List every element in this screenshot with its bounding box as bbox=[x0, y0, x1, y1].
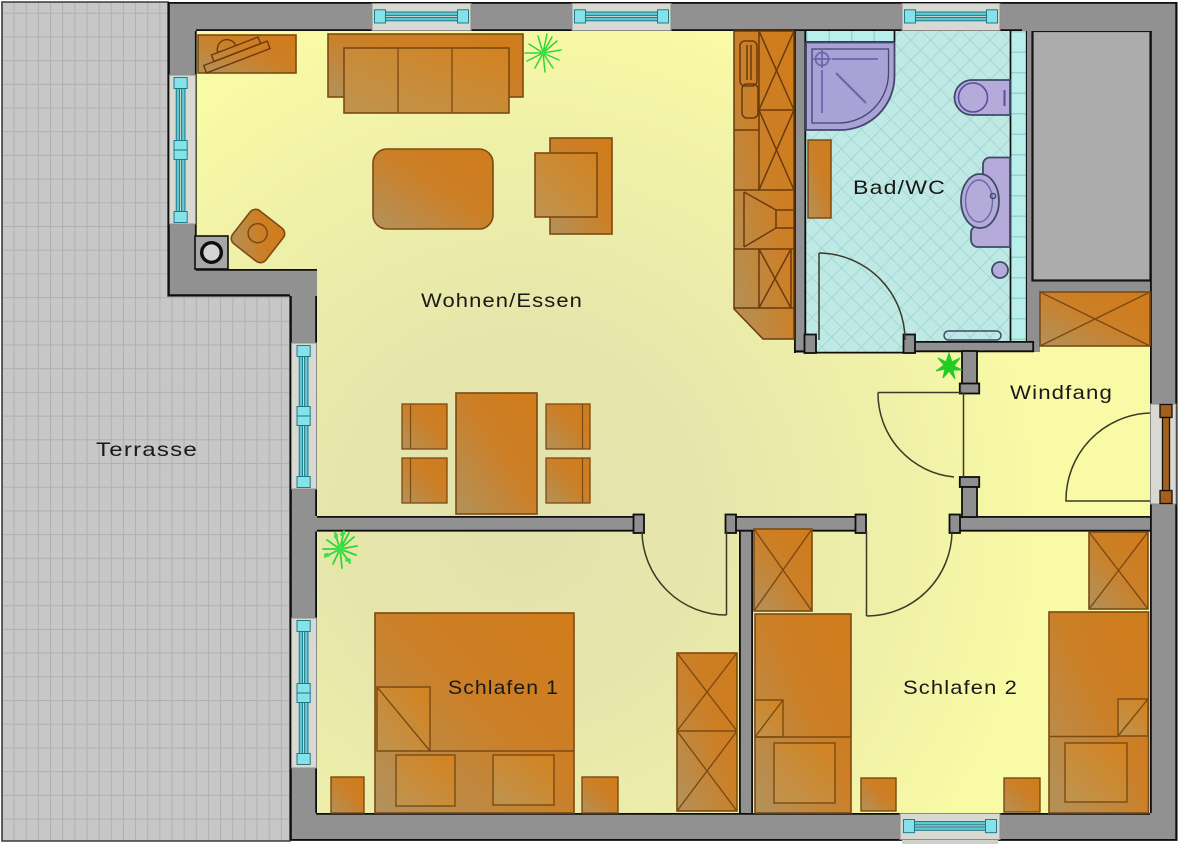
svg-text:Schlafen 1: Schlafen 1 bbox=[448, 677, 559, 699]
svg-text:Bad/WC: Bad/WC bbox=[853, 177, 946, 199]
svg-text:Windfang: Windfang bbox=[1010, 382, 1113, 404]
svg-text:Wohnen/Essen: Wohnen/Essen bbox=[421, 290, 583, 312]
svg-text:Schlafen 2: Schlafen 2 bbox=[903, 677, 1018, 699]
svg-text:Terrasse: Terrasse bbox=[96, 439, 198, 461]
